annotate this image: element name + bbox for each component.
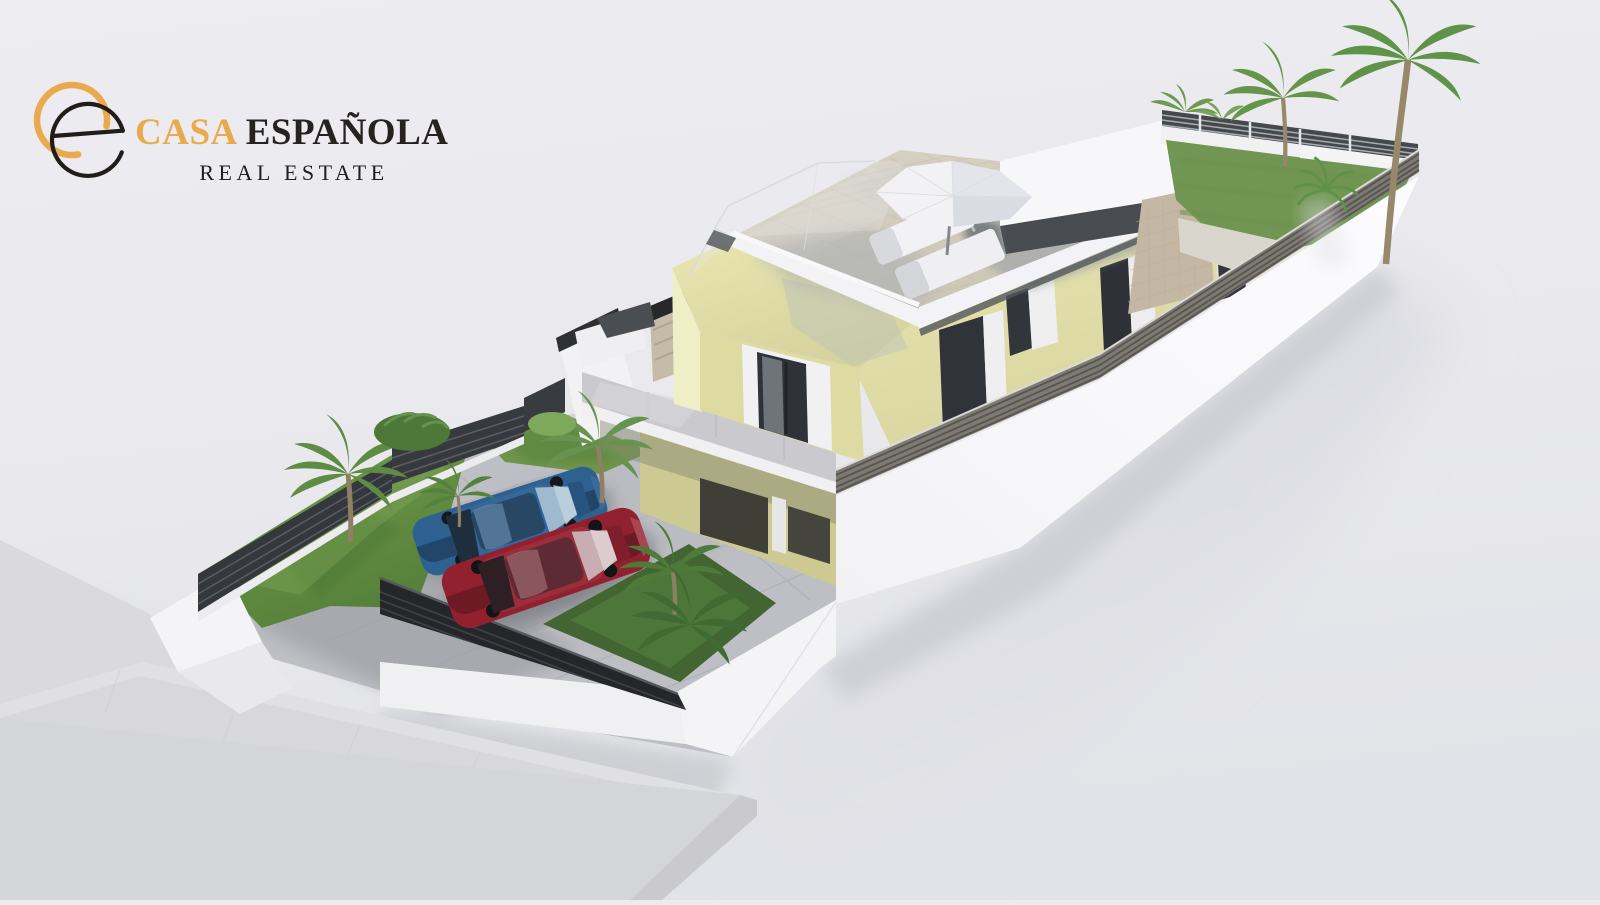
svg-text:CASAESPAÑOLA: CASAESPAÑOLA bbox=[135, 111, 448, 153]
svg-text:REAL ESTATE: REAL ESTATE bbox=[199, 160, 388, 185]
